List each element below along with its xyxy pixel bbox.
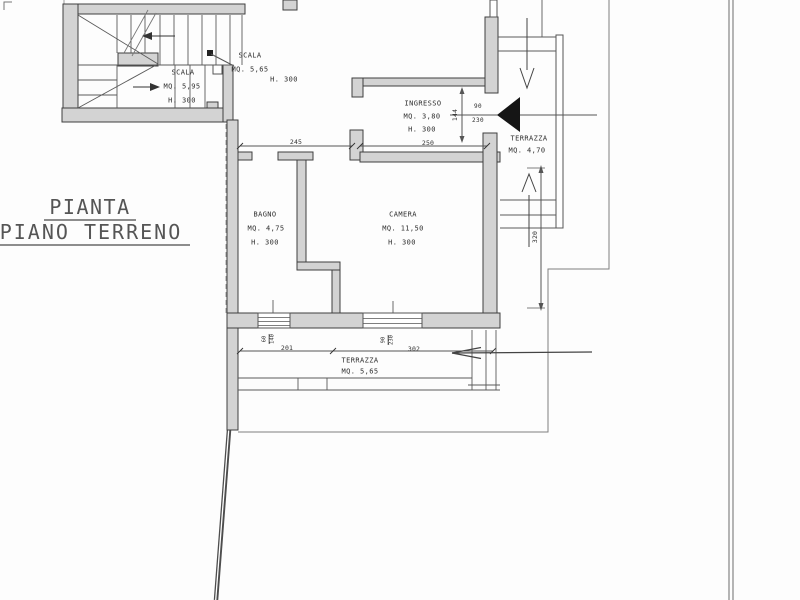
bagno-height: H. 300 — [251, 240, 279, 247]
stair-left-wall — [63, 4, 78, 110]
stair-step-notch — [213, 65, 222, 74]
east-wall-upper — [485, 17, 498, 93]
terrazza-upper-area: MQ. 4,70 — [509, 148, 546, 155]
stair-flight-arrow-icon — [133, 83, 160, 91]
ingresso-north-wall — [357, 78, 487, 86]
floor-plan-drawing — [0, 0, 800, 600]
terrace-rail — [556, 35, 563, 228]
bagno-north-wall — [278, 152, 313, 160]
ingresso-door-width: 90 — [474, 104, 482, 110]
stair-bottom-wall — [62, 108, 233, 122]
wall-notch — [207, 102, 218, 108]
property-boundary-right — [729, 0, 733, 600]
south-wall-b — [288, 313, 363, 328]
bagno-window — [258, 300, 290, 328]
ingresso-door-height: 230 — [472, 118, 484, 124]
scala-lower-area: MQ. 5,95 — [164, 84, 201, 91]
dim-ingresso-width: 250 — [422, 140, 434, 147]
camera-door-height: 230 — [389, 335, 395, 345]
stair-top-wall — [75, 4, 245, 14]
bagno-camera-divider-lower — [332, 270, 340, 315]
floor-plan-canvas: PIANTA PIANO TERRENO SCALA MQ. 5,65 H. 3… — [0, 0, 800, 600]
east-wall-cap — [490, 0, 497, 17]
garden-fence — [216, 430, 229, 600]
dim-terrace-right: 302 — [408, 346, 420, 353]
east-wall-lower — [483, 133, 497, 313]
terrace-down-arrow-icon — [520, 18, 534, 88]
garden-boundary-line — [238, 0, 609, 432]
camera-french-door — [363, 301, 422, 328]
ingresso-height: H. 300 — [408, 127, 436, 134]
dim-corridor-width: 245 — [290, 139, 302, 146]
terrazza-lower-area: MQ. 5,65 — [342, 369, 379, 376]
ingresso-name: INGRESSO — [405, 101, 442, 108]
south-wall-c — [422, 313, 500, 328]
south-wall-a — [227, 313, 260, 328]
stair-right-wall — [223, 65, 233, 122]
scala-upper-height: H. 300 — [270, 77, 298, 84]
bagno-camera-divider-jog — [297, 262, 340, 270]
ingresso-area: MQ. 3,80 — [404, 114, 441, 121]
plan-title-line1: PIANTA — [44, 197, 136, 221]
door-leaf-icon — [497, 97, 520, 132]
bagno-area: MQ. 4,75 — [248, 226, 285, 233]
terrazza-upper-name: TERRAZZA — [511, 136, 548, 143]
bagno-camera-divider-upper — [297, 160, 306, 262]
camera-area: MQ. 11,50 — [382, 226, 424, 233]
ingresso-west-stub-upper — [352, 78, 363, 97]
dim-side-depth: 320 — [532, 231, 539, 243]
bagno-window-height: 140 — [270, 334, 276, 344]
staircase — [78, 10, 242, 108]
stair-landing — [118, 53, 158, 66]
terrace-entrance-arrow-icon — [452, 348, 592, 359]
stair-up-arrow-icon — [142, 32, 175, 40]
scala-upper-name: SCALA — [238, 53, 261, 60]
bagno-window-width: 60 — [262, 336, 268, 343]
dim-terrace-left: 201 — [281, 345, 293, 352]
scala-lower-name: SCALA — [171, 70, 194, 77]
scala-lower-height: H. 300 — [168, 98, 196, 105]
camera-name: CAMERA — [389, 212, 417, 219]
camera-height: H. 300 — [388, 240, 416, 247]
camera-door-width: 90 — [381, 337, 387, 344]
bagno-north-stub — [238, 152, 252, 160]
bagno-window-size: 60 140 — [262, 334, 277, 344]
top-pier — [283, 0, 297, 10]
camera-north-wall — [360, 152, 500, 162]
camera-door-size: 90 230 — [381, 335, 396, 345]
corner-mark — [4, 2, 12, 10]
plan-title-line2: PIANO TERRENO — [0, 222, 190, 246]
west-wall — [227, 120, 238, 430]
dim-ingresso-depth: 144 — [452, 109, 459, 121]
bagno-name: BAGNO — [253, 212, 276, 219]
terrazza-lower-name: TERRAZZA — [342, 358, 379, 365]
scala-upper-area: MQ. 5,65 — [232, 67, 269, 74]
